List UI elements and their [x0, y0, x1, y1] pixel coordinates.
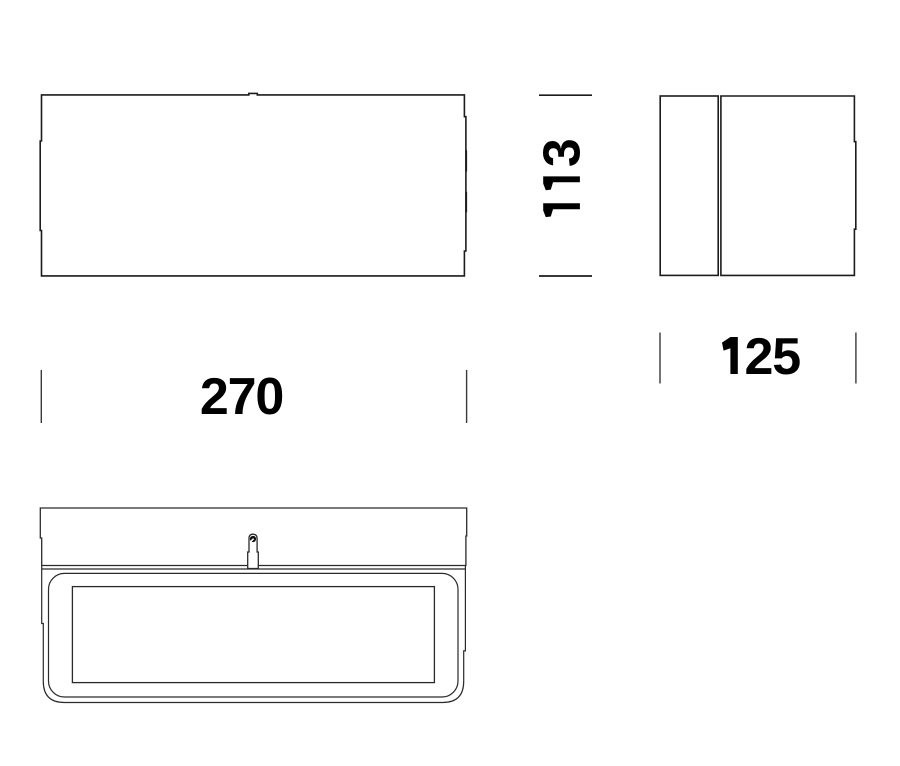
svg-text:25: 25 [745, 328, 801, 386]
svg-text:270: 270 [200, 368, 283, 426]
svg-text:3: 3 [534, 138, 592, 167]
